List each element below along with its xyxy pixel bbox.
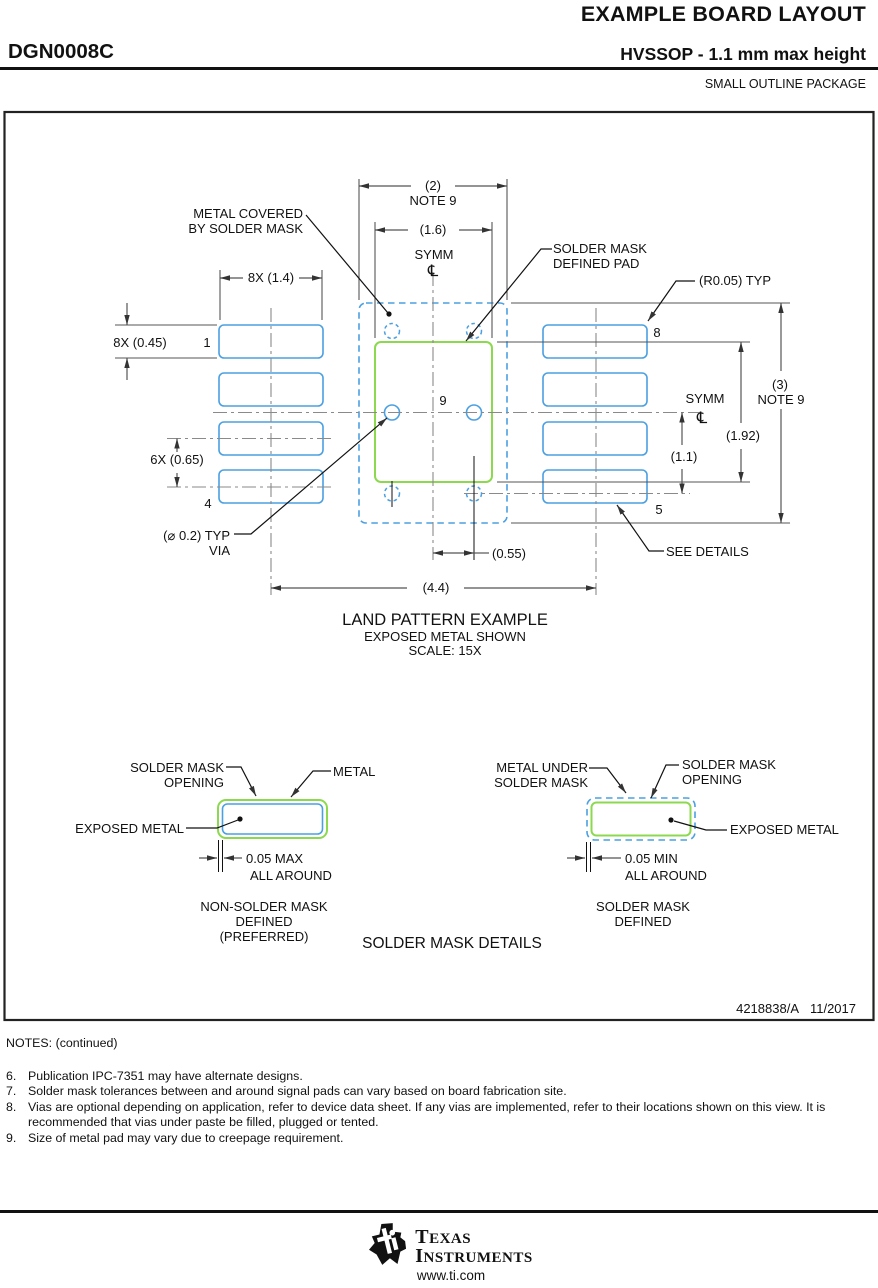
note-item-8: 8. Vias are optional depending on applic… [6, 1100, 834, 1131]
view-subtitle-2: SCALE: 15X [409, 643, 482, 658]
solder-mask-defined-pad-label-2: DEFINED PAD [553, 256, 639, 271]
nsmd-metal-label: METAL [333, 764, 375, 779]
ti-logo: TEXAS INSTRUMENTS [369, 1221, 532, 1267]
via-diameter-label: (⌀ 0.2) TYP [163, 528, 230, 543]
note-text: Size of metal pad may vary due to creepa… [28, 1131, 834, 1147]
dim-3-note: NOTE 9 [758, 392, 805, 407]
datasheet-page: EXAMPLE BOARD LAYOUT DGN0008C HVSSOP - 1… [0, 0, 878, 1288]
nsmd-detail: SOLDER MASK OPENING METAL EXPOSED METAL … [75, 760, 375, 944]
radius-typ-label: (R0.05) TYP [699, 273, 771, 288]
smd-exposed-metal-label: EXPOSED METAL [730, 822, 839, 837]
notes-title: NOTES: (continued) [6, 1036, 834, 1052]
view-title: LAND PATTERN EXAMPLE [342, 611, 548, 629]
dim-1-6: (1.6) [420, 222, 447, 237]
smd-metal-under-label-1: METAL UNDER [496, 760, 588, 775]
smd-caption-2: DEFINED [614, 914, 671, 929]
smd-caption-1: SOLDER MASK [596, 899, 690, 914]
right-pad-column [543, 325, 647, 503]
ti-wordmark: TEXAS INSTRUMENTS [415, 1221, 532, 1267]
revision-date: 11/2017 [810, 1001, 856, 1016]
centerlines [167, 272, 700, 595]
nsmd-all-around-label: ALL AROUND [250, 868, 332, 883]
nsmd-exposed-metal-label: EXPOSED METAL [75, 821, 184, 836]
dim-2: (2) [425, 178, 441, 193]
pin-8-label: 8 [653, 325, 660, 340]
texas-state-icon [369, 1221, 407, 1267]
dim-3: (3) [772, 377, 788, 392]
smd-mask-opening-label-2: OPENING [682, 772, 742, 787]
nsmd-clearance-value: 0.05 MAX [246, 851, 303, 866]
symm-label-right: SYMM [686, 391, 725, 406]
smd-metal-under-label-2: SOLDER MASK [494, 775, 588, 790]
smd-clearance-value: 0.05 MIN [625, 851, 678, 866]
note-text: Solder mask tolerances between and aroun… [28, 1084, 834, 1100]
note-item-7: 7. Solder mask tolerances between and ar… [6, 1084, 834, 1100]
dim-8x-0-45: 8X (0.45) [113, 335, 166, 350]
pad-6 [543, 422, 647, 455]
brand-line-2: INSTRUMENTS [415, 1248, 532, 1267]
notes-section: NOTES: (continued) 6. Publication IPC-73… [6, 1036, 834, 1146]
note-number: 6. [6, 1069, 28, 1085]
smd-mask-opening-outline [592, 803, 691, 836]
nsmd-mask-opening-label-2: OPENING [164, 775, 224, 790]
dim-4-4: (4.4) [423, 580, 450, 595]
via-label: VIA [209, 543, 230, 558]
pin-4-label: 4 [204, 496, 211, 511]
dim-8x-1-4: 8X (1.4) [248, 270, 294, 285]
smd-mask-opening-label-1: SOLDER MASK [682, 757, 776, 772]
ti-url: www.ti.com [417, 1268, 485, 1283]
metal-covered-label-1: METAL COVERED [193, 206, 303, 221]
symm-label-top: SYMM [415, 247, 454, 262]
dim-1-92: (1.92) [726, 428, 760, 443]
note-number: 9. [6, 1131, 28, 1147]
centerline-symbol-right: ℄ [696, 410, 708, 427]
note-text: Vias are optional depending on applicati… [28, 1100, 834, 1131]
solder-mask-defined-pad-label-1: SOLDER MASK [553, 241, 647, 256]
pin-9-label: 9 [439, 393, 446, 408]
pad-5 [543, 470, 647, 503]
doc-number: 4218838/A [736, 1001, 799, 1016]
brand-line-1: TEXAS [415, 1229, 532, 1248]
centerline-symbol-top: ℄ [427, 263, 439, 280]
nsmd-caption-1: NON-SOLDER MASK [200, 899, 327, 914]
via-top-left [385, 324, 400, 339]
pin-5-label: 5 [655, 502, 662, 517]
nsmd-caption-2: DEFINED [235, 914, 292, 929]
dim-0-55: (0.55) [492, 546, 526, 561]
footer-rule [0, 1210, 878, 1213]
metal-covered-label-2: BY SOLDER MASK [188, 221, 303, 236]
smd-detail: METAL UNDER SOLDER MASK SOLDER MASK OPEN… [494, 757, 839, 929]
dim-6x-0-65: 6X (0.65) [150, 452, 203, 467]
nsmd-caption-3: (PREFERRED) [220, 929, 309, 944]
note-item-9: 9. Size of metal pad may vary due to cre… [6, 1131, 834, 1147]
smd-all-around-label: ALL AROUND [625, 868, 707, 883]
see-details-label: SEE DETAILS [666, 544, 749, 559]
smd-metal-under-mask-outline [587, 798, 695, 840]
pin-1-label: 1 [203, 335, 210, 350]
dim-2-note: NOTE 9 [410, 193, 457, 208]
view-subtitle-1: EXPOSED METAL SHOWN [364, 629, 526, 644]
note-number: 8. [6, 1100, 28, 1131]
pad-7 [543, 373, 647, 406]
note-number: 7. [6, 1084, 28, 1100]
footer: TEXAS INSTRUMENTS www.ti.com [0, 1221, 878, 1283]
nsmd-mask-opening-label-1: SOLDER MASK [130, 760, 224, 775]
nsmd-metal-outline [218, 800, 327, 838]
details-title: SOLDER MASK DETAILS [362, 935, 542, 952]
note-item-6: 6. Publication IPC-7351 may have alterna… [6, 1069, 834, 1085]
dim-1-1: (1.1) [671, 449, 698, 464]
note-text: Publication IPC-7351 may have alternate … [28, 1069, 834, 1085]
